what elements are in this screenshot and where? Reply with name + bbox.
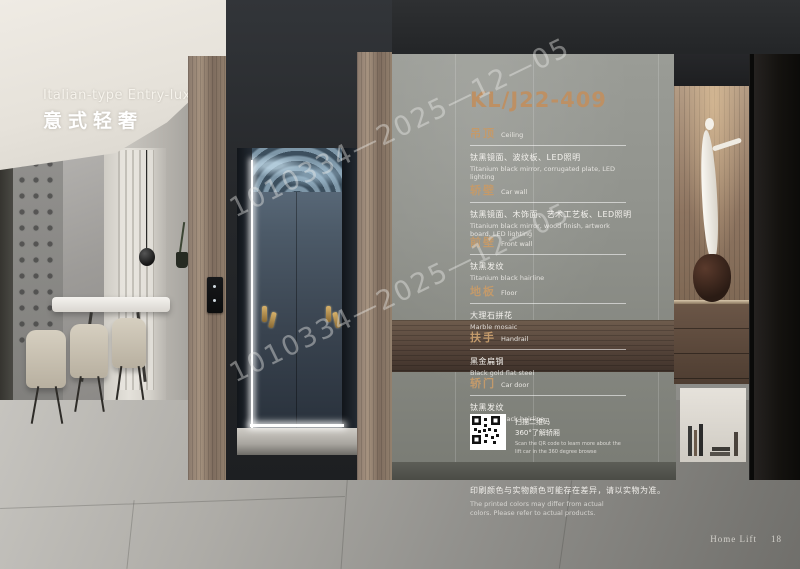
- spec-header: 轿壁Car wall: [470, 179, 635, 198]
- spec-title-zh: 地板: [470, 285, 496, 298]
- qr-caption-en: Scan the QR code to learn more about the…: [515, 441, 623, 456]
- top-dark-band: [392, 0, 800, 56]
- divider: [470, 395, 626, 396]
- pendant-lamp: [139, 248, 155, 266]
- pendant-cord: [146, 150, 147, 250]
- spec-title-zh: 轿门: [470, 377, 496, 390]
- qr-caption-zh-1: 扫描二维码: [515, 417, 623, 428]
- divider: [470, 303, 626, 304]
- spec-title-en: Handrail: [501, 335, 528, 343]
- dining-chair: [112, 318, 146, 368]
- spec-desc-zh: 大理石拼花: [470, 310, 635, 321]
- spec-title-en: Ceiling: [501, 131, 523, 139]
- wood-pilaster-left: [188, 56, 228, 480]
- book-spine: [694, 430, 697, 456]
- spec-title-zh: 轿壁: [470, 184, 496, 197]
- call-button-down[interactable]: [213, 299, 216, 302]
- dining-table: [52, 297, 170, 312]
- skirting: [392, 462, 676, 480]
- spec-header: 轿门Car door: [470, 372, 635, 391]
- sculpture-head: [705, 118, 714, 130]
- spec-section-handrail: 扶手Handrail 黑金扁钢 Black gold flat steel: [470, 326, 635, 377]
- spec-header: 扶手Handrail: [470, 326, 635, 345]
- spec-section-floor: 地板Floor 大理石拼花 Marble mosaic: [470, 280, 635, 331]
- spec-title-zh: 吊顶: [470, 127, 496, 140]
- brass-handle-icon: [262, 306, 267, 322]
- divider: [470, 349, 626, 350]
- spec-section-ceiling: 吊顶Ceiling 钛黑镜面、波纹板、LED照明 Titanium black …: [470, 122, 635, 182]
- series-title-zh: 意式轻奢: [43, 106, 143, 133]
- spec-header: 地板Floor: [470, 280, 635, 299]
- entry-door: [754, 54, 800, 480]
- dining-chair: [70, 324, 108, 378]
- book-spine: [688, 426, 692, 456]
- car-panel-seam: [296, 190, 297, 430]
- qr-block: 扫描二维码 360°了解轿厢 Scan the QR code to learn…: [470, 414, 623, 456]
- book-spine: [734, 432, 738, 456]
- threshold-light: [250, 424, 344, 427]
- divider: [470, 145, 626, 146]
- page-footer: Home Lift18: [710, 534, 782, 544]
- spec-desc-zh: 钛黑发纹: [470, 402, 635, 413]
- book-shelf: [680, 388, 746, 462]
- car-floor-sill: [237, 428, 357, 455]
- series-title-en: Italian-type Entry-lux: [43, 88, 191, 103]
- book-flat: [710, 452, 730, 456]
- decor-vase: [693, 254, 731, 302]
- spec-desc-zh: 钛黑镜面、波纹板、LED照明: [470, 152, 635, 163]
- plant-pot: [176, 252, 188, 268]
- qr-caption: 扫描二维码 360°了解轿厢 Scan the QR code to learn…: [515, 417, 623, 456]
- spec-title-en: Car door: [501, 381, 529, 389]
- disclaimer-zh: 印刷颜色与实物颜色可能存在差异，请以实物为准。: [470, 485, 666, 496]
- qr-caption-zh-2: 360°了解轿厢: [515, 428, 623, 439]
- disclaimer: 印刷颜色与实物颜色可能存在差异，请以实物为准。 The printed colo…: [470, 485, 666, 518]
- dining-chair: [26, 330, 66, 388]
- book-spine: [699, 424, 703, 456]
- wall-edge: [0, 140, 13, 440]
- spec-header: 吊顶Ceiling: [470, 122, 635, 141]
- catalog-page: Italian-type Entry-lux 意式轻奢 KL/J22-409 吊…: [0, 0, 800, 569]
- panel-seam: [658, 54, 659, 462]
- spec-title-en: Car wall: [501, 188, 527, 196]
- display-knobs: [18, 160, 60, 350]
- spec-desc-zh: 黑金扁钢: [470, 356, 635, 367]
- cabinet-drawers: [674, 304, 754, 384]
- spec-title-zh: 扶手: [470, 331, 496, 344]
- elevator-call-panel[interactable]: [207, 277, 223, 313]
- disclaimer-en: The printed colors may differ from actua…: [470, 500, 622, 518]
- footer-brand: Home Lift: [710, 534, 757, 544]
- qr-code-icon: [470, 414, 506, 450]
- footer-page-number: 18: [771, 534, 782, 544]
- spec-title-en: Floor: [501, 289, 517, 297]
- call-button-up[interactable]: [213, 285, 216, 288]
- book-flat: [712, 447, 730, 451]
